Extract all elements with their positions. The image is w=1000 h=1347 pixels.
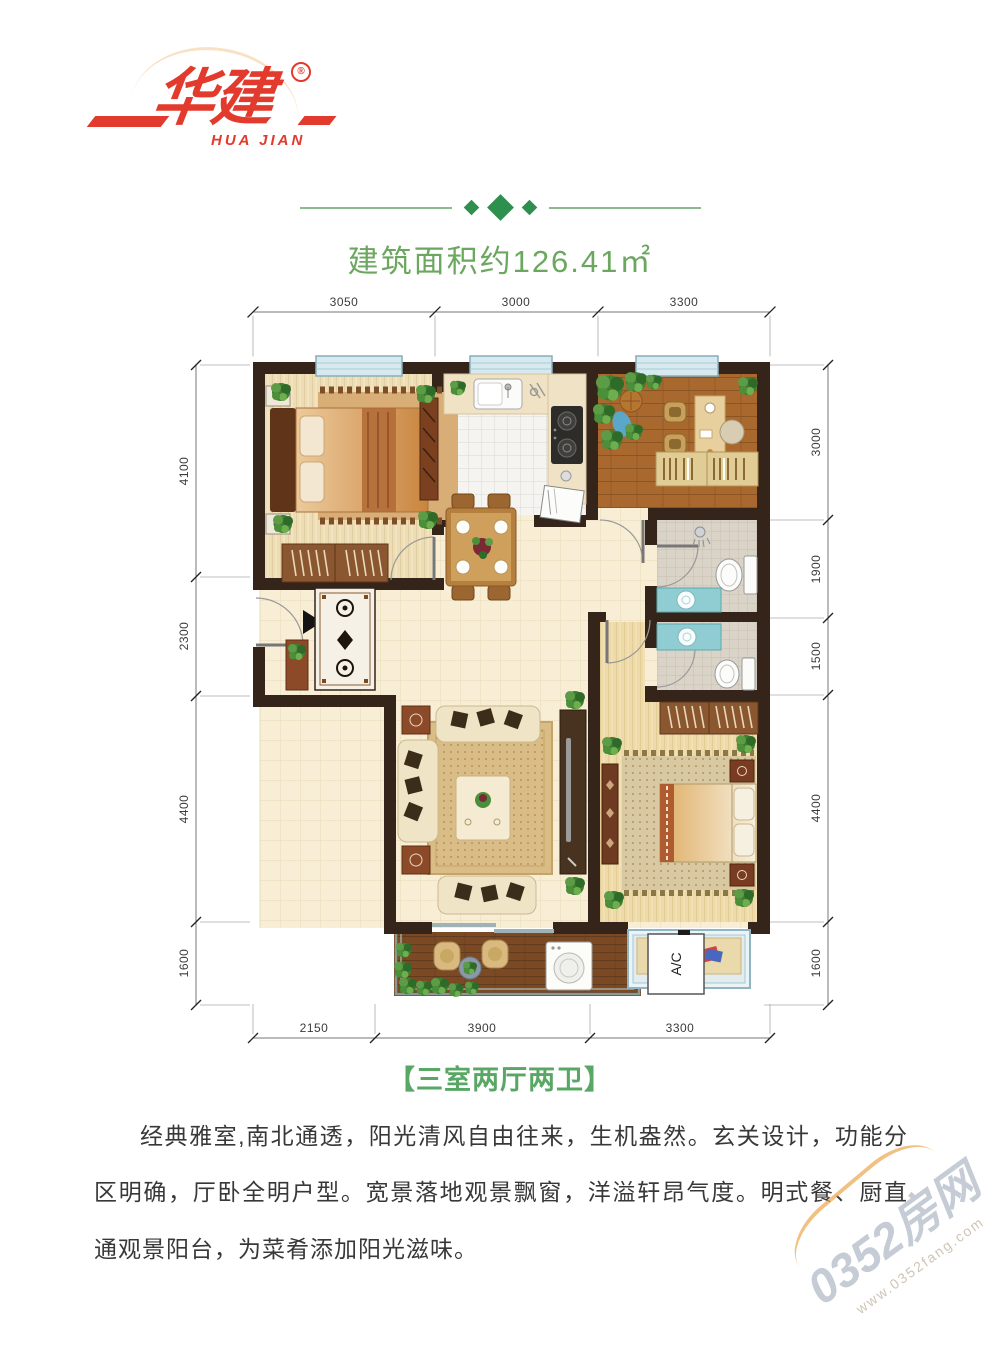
- master-wardrobe: [660, 702, 758, 734]
- svg-text:3000: 3000: [809, 428, 823, 457]
- dining-furniture: [446, 494, 516, 600]
- svg-text:2300: 2300: [177, 622, 191, 651]
- page-title: 建筑面积约126.41㎡: [0, 236, 1000, 281]
- kitchen-knob: [561, 471, 571, 481]
- window-kitchen: [470, 356, 552, 376]
- master-bed: [660, 784, 756, 862]
- tv-icon: [566, 738, 571, 842]
- divider-rule-left: [300, 207, 452, 209]
- study-bookshelf: [656, 452, 758, 486]
- tall-cabinet: [420, 398, 438, 500]
- side-table: [402, 706, 430, 734]
- kitchen-appliance: [540, 485, 584, 522]
- svg-text:3050: 3050: [330, 295, 359, 309]
- registered-trademark-icon: ®: [291, 62, 311, 82]
- dimensions-right: 3000 1900 1500 4400 1600: [764, 360, 833, 1010]
- svg-text:3300: 3300: [670, 295, 699, 309]
- svg-text:4400: 4400: [177, 795, 191, 824]
- logo-latin-name: HUA JIAN: [211, 132, 305, 149]
- dimensions-top: 3050 3000 3300: [248, 295, 775, 356]
- stove-icon: [551, 406, 583, 464]
- svg-text:1600: 1600: [177, 949, 191, 978]
- coffee-table: [456, 776, 510, 840]
- svg-text:1500: 1500: [809, 642, 823, 671]
- bedroom-1-wardrobe: [282, 544, 388, 582]
- windows: [316, 356, 718, 376]
- sink-counter: [657, 624, 721, 650]
- dining-chair: [488, 494, 510, 508]
- sink-counter: [657, 588, 721, 612]
- dining-chair: [488, 586, 510, 600]
- svg-text:3900: 3900: [468, 1021, 497, 1035]
- logo-brand-characters: 华建: [149, 68, 276, 130]
- flyer-page: 华建 ® HUA JIAN 建筑面积约126.41㎡: [0, 0, 1000, 1347]
- nightstand: [730, 864, 754, 886]
- entry-rug: [315, 588, 375, 690]
- svg-text:3000: 3000: [502, 295, 531, 309]
- master-dresser: [602, 764, 618, 864]
- ac-label: A/C: [668, 952, 684, 975]
- divider-rule-right: [549, 207, 701, 209]
- dimensions-bottom: 2150 3900 3300: [248, 1004, 775, 1043]
- layout-type-label: 【三室两厅两卫】: [0, 1058, 1000, 1097]
- diamond-icon: [487, 194, 514, 221]
- svg-text:3300: 3300: [666, 1021, 695, 1035]
- diamond-icon: [463, 200, 479, 216]
- diamond-divider: [0, 198, 1000, 217]
- svg-text:2150: 2150: [300, 1021, 329, 1035]
- nightstand: [730, 760, 754, 782]
- diamond-icon: [521, 200, 537, 216]
- ac-platform: A/C: [648, 930, 704, 994]
- svg-text:1900: 1900: [809, 555, 823, 584]
- window-study: [636, 356, 718, 376]
- washing-machine-icon: [546, 942, 592, 990]
- logo-right-stroke: [297, 116, 336, 125]
- window-bedroom-1: [316, 356, 402, 376]
- svg-text:1600: 1600: [809, 949, 823, 978]
- dimensions-left: 4100 2300 4400 1600: [177, 360, 250, 1010]
- floor-plan: 3050 3000 3300 2150 3900 3300: [140, 285, 860, 1075]
- kitchen-sink-icon: [474, 379, 522, 409]
- marketing-description: 经典雅室,南北通透，阳光清风自由往来，生机盎然。玄关设计，功能分区明确，厅卧全明…: [94, 1108, 908, 1277]
- bedroom-1-bed: [270, 408, 428, 512]
- desk-chair: [720, 420, 744, 444]
- svg-text:4400: 4400: [809, 794, 823, 823]
- dining-chair: [452, 494, 474, 508]
- svg-text:4100: 4100: [177, 457, 191, 486]
- dining-chair: [452, 586, 474, 600]
- side-table: [402, 846, 430, 874]
- dining-table: [446, 508, 516, 586]
- toilet-icon: [716, 556, 757, 594]
- tv-cabinet: [560, 710, 586, 874]
- huajian-logo: 华建 ® HUA JIAN: [95, 66, 335, 170]
